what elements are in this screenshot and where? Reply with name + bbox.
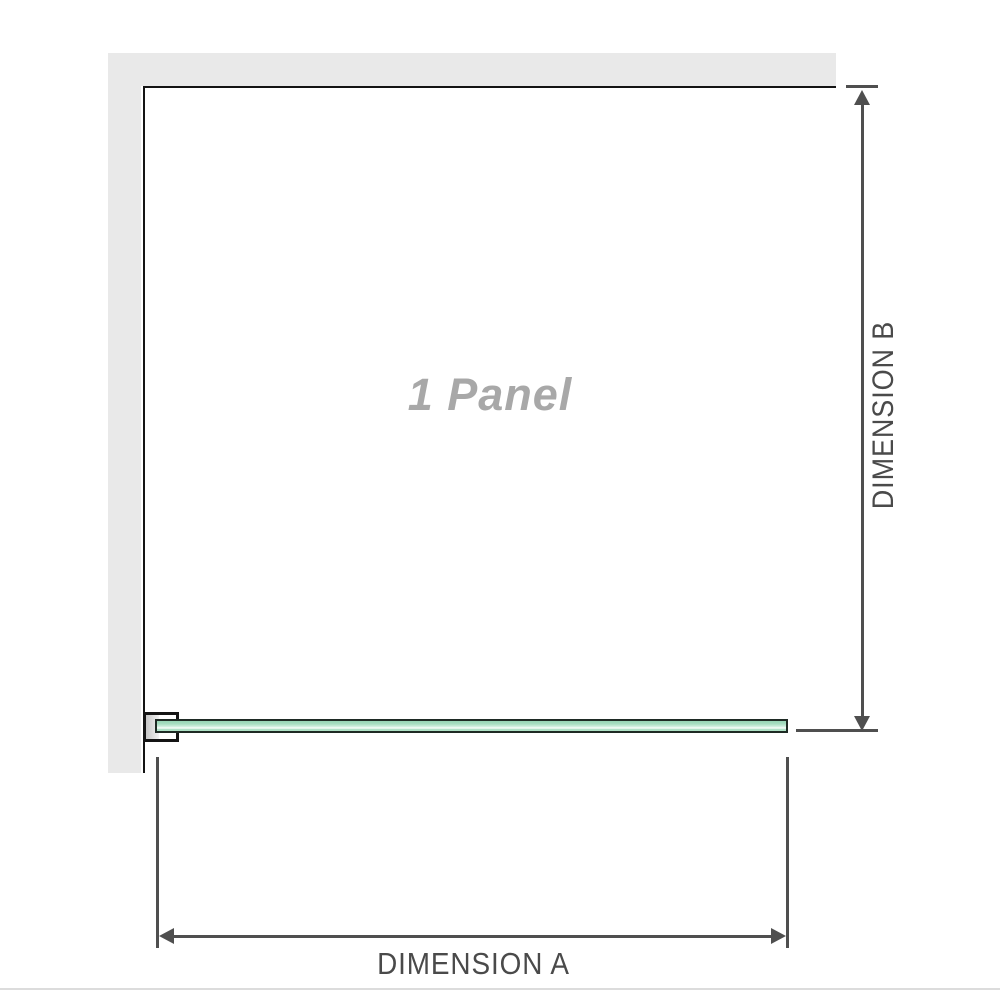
- dimension-b-top-tick: [846, 85, 878, 88]
- arrow-left-icon: [159, 928, 174, 944]
- wall-side-bar: [108, 53, 141, 773]
- footer-divider: [0, 988, 1000, 990]
- arrow-up-icon: [854, 90, 870, 105]
- wall-top-bar: [108, 53, 836, 86]
- dimension-a-left-tick: [156, 757, 159, 948]
- dimension-a-right-tick: [786, 757, 789, 948]
- dimension-b-line: [861, 96, 864, 726]
- dimension-a-line: [170, 935, 780, 938]
- panel-outline: [143, 86, 836, 773]
- arrow-right-icon: [771, 928, 786, 944]
- product-dimension-diagram: 1 Panel DIMENSION B DIMENSION A: [0, 0, 1000, 1000]
- arrow-down-icon: [854, 716, 870, 731]
- glass-panel-bar: [155, 719, 788, 733]
- dimension-a-label: DIMENSION A: [191, 948, 755, 979]
- dimension-b-label: DIMENSION B: [869, 280, 899, 550]
- panel-label: 1 Panel: [143, 372, 837, 417]
